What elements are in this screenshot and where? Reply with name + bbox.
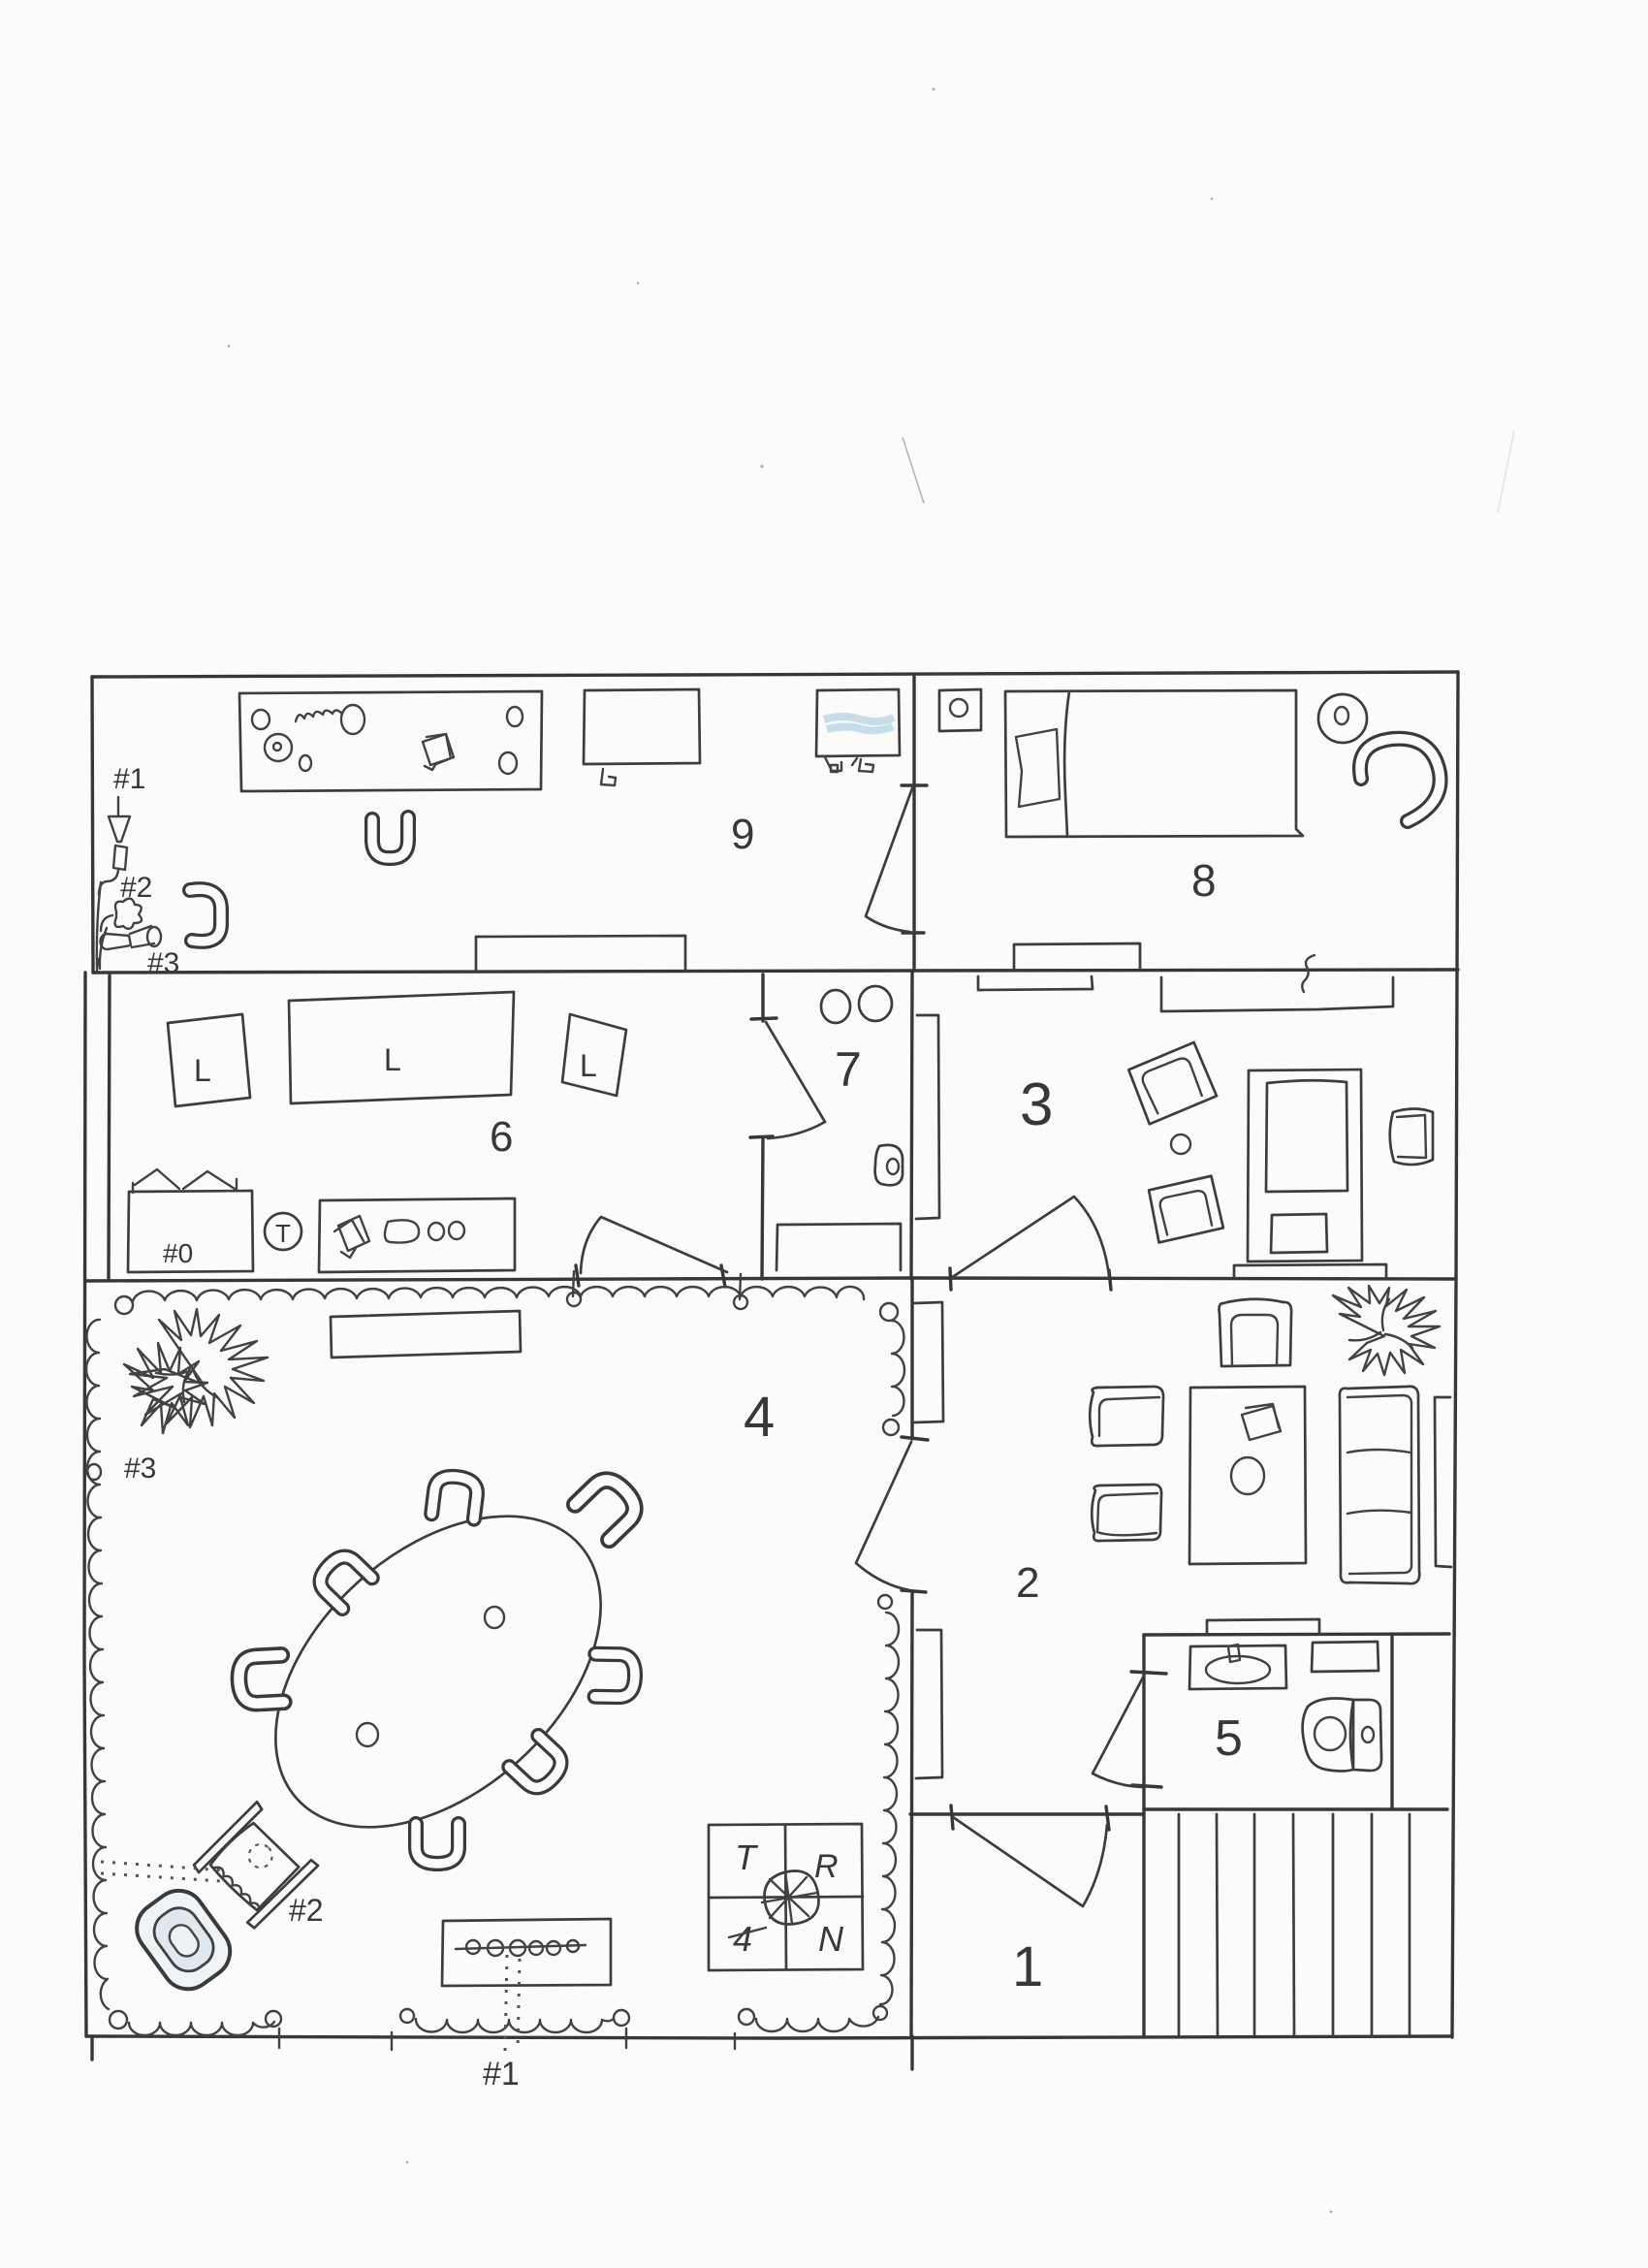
svg-text:1: 1 — [1012, 1935, 1043, 1998]
svg-text:#1: #1 — [483, 2056, 520, 2092]
svg-text:6: 6 — [490, 1113, 513, 1161]
svg-text:L: L — [194, 1053, 211, 1088]
svg-text:2: 2 — [1016, 1559, 1039, 1607]
svg-text:#1: #1 — [113, 763, 145, 795]
svg-text:9: 9 — [731, 811, 754, 858]
svg-text:L: L — [580, 1048, 597, 1083]
svg-text:N: N — [818, 1919, 844, 1959]
svg-text:5: 5 — [1215, 1710, 1243, 1767]
svg-text:4: 4 — [744, 1386, 775, 1449]
svg-text:8: 8 — [1191, 855, 1217, 906]
svg-text:T: T — [275, 1219, 291, 1248]
svg-text:7: 7 — [835, 1042, 862, 1097]
svg-text:#0: #0 — [163, 1238, 193, 1268]
svg-text:#3: #3 — [147, 947, 179, 979]
svg-text:R: R — [814, 1848, 839, 1885]
svg-text:L: L — [384, 1042, 401, 1077]
svg-text:T: T — [735, 1837, 759, 1877]
svg-text:#3: #3 — [124, 1453, 156, 1485]
svg-text:3: 3 — [1020, 1071, 1053, 1138]
svg-text:#2: #2 — [289, 1893, 324, 1928]
svg-text:4: 4 — [733, 1919, 752, 1959]
